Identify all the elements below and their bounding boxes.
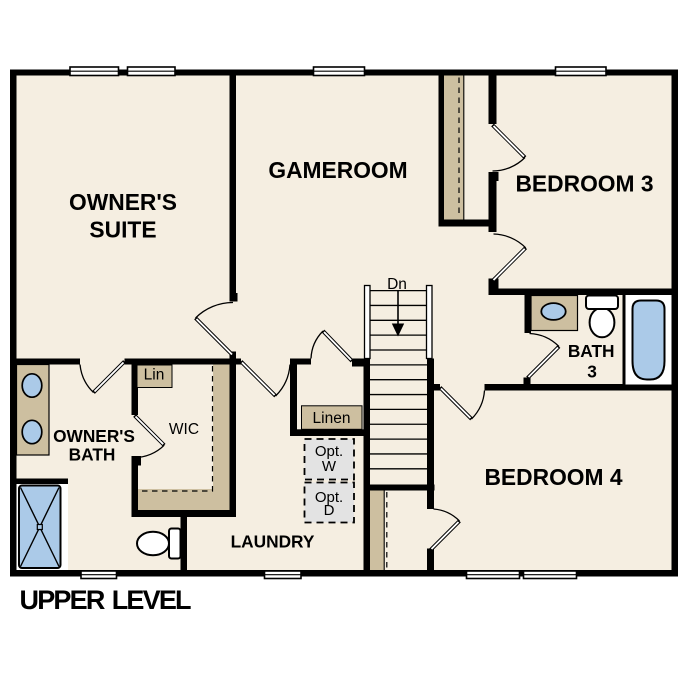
svg-text:SUITE: SUITE: [89, 216, 156, 242]
svg-text:BATH: BATH: [568, 341, 615, 361]
svg-text:WIC: WIC: [169, 421, 199, 438]
svg-text:BATH: BATH: [69, 445, 116, 465]
svg-text:Dn: Dn: [387, 276, 407, 293]
svg-text:BEDROOM 3: BEDROOM 3: [515, 171, 653, 197]
svg-text:Lin: Lin: [144, 367, 165, 384]
svg-text:3: 3: [587, 361, 597, 381]
svg-text:LAUNDRY: LAUNDRY: [231, 531, 315, 551]
svg-text:OWNER'S: OWNER'S: [69, 189, 177, 215]
svg-text:Linen: Linen: [313, 410, 351, 427]
svg-text:OWNER'S: OWNER'S: [53, 426, 135, 446]
svg-text:UPPER LEVEL: UPPER LEVEL: [20, 585, 192, 615]
svg-text:GAMEROOM: GAMEROOM: [268, 157, 407, 183]
svg-text:W: W: [322, 458, 337, 475]
svg-text:D: D: [324, 502, 335, 519]
svg-text:BEDROOM 4: BEDROOM 4: [484, 464, 622, 490]
